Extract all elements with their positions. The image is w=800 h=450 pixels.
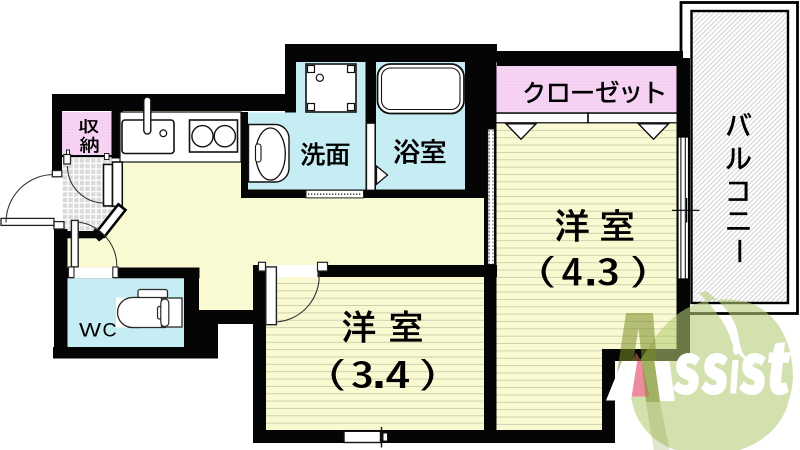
svg-text:C: C bbox=[103, 320, 117, 342]
svg-text:W: W bbox=[79, 319, 102, 341]
